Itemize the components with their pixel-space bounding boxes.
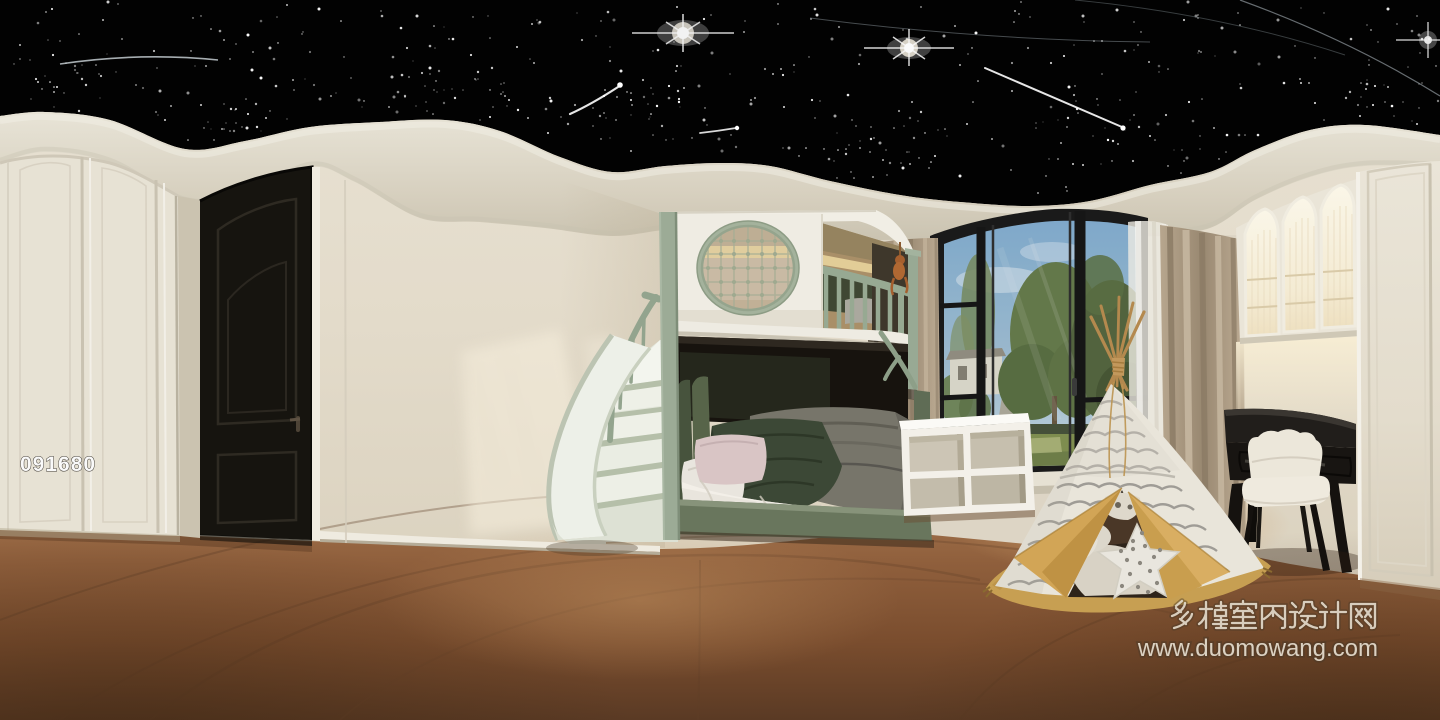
svg-text:091680: 091680 bbox=[20, 453, 96, 476]
svg-text:www.duomowang.com: www.duomowang.com bbox=[1137, 635, 1378, 662]
